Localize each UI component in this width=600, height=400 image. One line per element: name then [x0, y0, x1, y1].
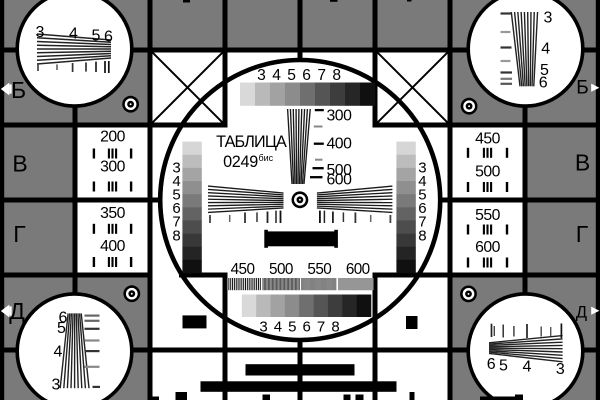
- svg-text:В: В: [12, 150, 27, 176]
- svg-text:6: 6: [539, 75, 548, 92]
- svg-text:6: 6: [487, 356, 496, 373]
- svg-text:Д: Д: [9, 298, 25, 324]
- svg-text:4: 4: [274, 319, 282, 336]
- svg-text:Д: Д: [576, 304, 587, 322]
- svg-text:400: 400: [327, 136, 353, 153]
- svg-text:Б: Б: [576, 78, 588, 99]
- svg-text:Г: Г: [13, 221, 26, 247]
- svg-text:3: 3: [259, 319, 267, 336]
- svg-text:6: 6: [104, 29, 113, 46]
- svg-text:ТАБЛИЦА: ТАБЛИЦА: [216, 133, 287, 151]
- svg-text:5: 5: [57, 320, 66, 337]
- svg-text:8: 8: [172, 227, 180, 244]
- svg-text:500: 500: [475, 164, 501, 181]
- svg-text:550: 550: [307, 261, 331, 278]
- svg-text:6: 6: [302, 67, 311, 84]
- svg-text:5: 5: [499, 357, 508, 374]
- svg-text:7: 7: [317, 319, 325, 336]
- svg-text:В: В: [575, 150, 590, 176]
- svg-text:200: 200: [100, 129, 126, 146]
- svg-text:600: 600: [327, 172, 353, 189]
- svg-text:350: 350: [100, 205, 126, 222]
- svg-text:4: 4: [523, 359, 532, 376]
- svg-text:5: 5: [92, 28, 101, 45]
- svg-text:500: 500: [269, 261, 293, 278]
- svg-text:3: 3: [36, 24, 45, 41]
- svg-text:300: 300: [327, 107, 353, 124]
- svg-text:4: 4: [54, 344, 63, 361]
- svg-text:5: 5: [287, 67, 296, 84]
- svg-text:7: 7: [317, 67, 326, 84]
- svg-text:300: 300: [100, 158, 126, 175]
- svg-text:600: 600: [475, 239, 501, 256]
- svg-text:бис: бис: [259, 153, 274, 163]
- svg-text:450: 450: [475, 131, 501, 148]
- svg-text:3: 3: [544, 10, 553, 27]
- svg-text:Г: Г: [576, 221, 589, 247]
- svg-text:400: 400: [100, 238, 126, 255]
- svg-text:3: 3: [556, 361, 565, 378]
- svg-text:5: 5: [288, 319, 296, 336]
- svg-text:8: 8: [332, 67, 341, 84]
- svg-text:3: 3: [52, 376, 61, 393]
- svg-text:450: 450: [231, 261, 255, 278]
- svg-text:8: 8: [418, 227, 426, 244]
- svg-text:6: 6: [303, 319, 311, 336]
- svg-text:0249: 0249: [223, 153, 258, 171]
- svg-text:4: 4: [541, 41, 550, 58]
- svg-text:550: 550: [475, 207, 501, 224]
- svg-text:3: 3: [257, 67, 266, 84]
- svg-text:8: 8: [331, 319, 339, 336]
- svg-text:4: 4: [69, 26, 78, 43]
- svg-text:4: 4: [272, 67, 281, 84]
- svg-text:Б: Б: [11, 77, 26, 103]
- svg-text:600: 600: [346, 261, 370, 278]
